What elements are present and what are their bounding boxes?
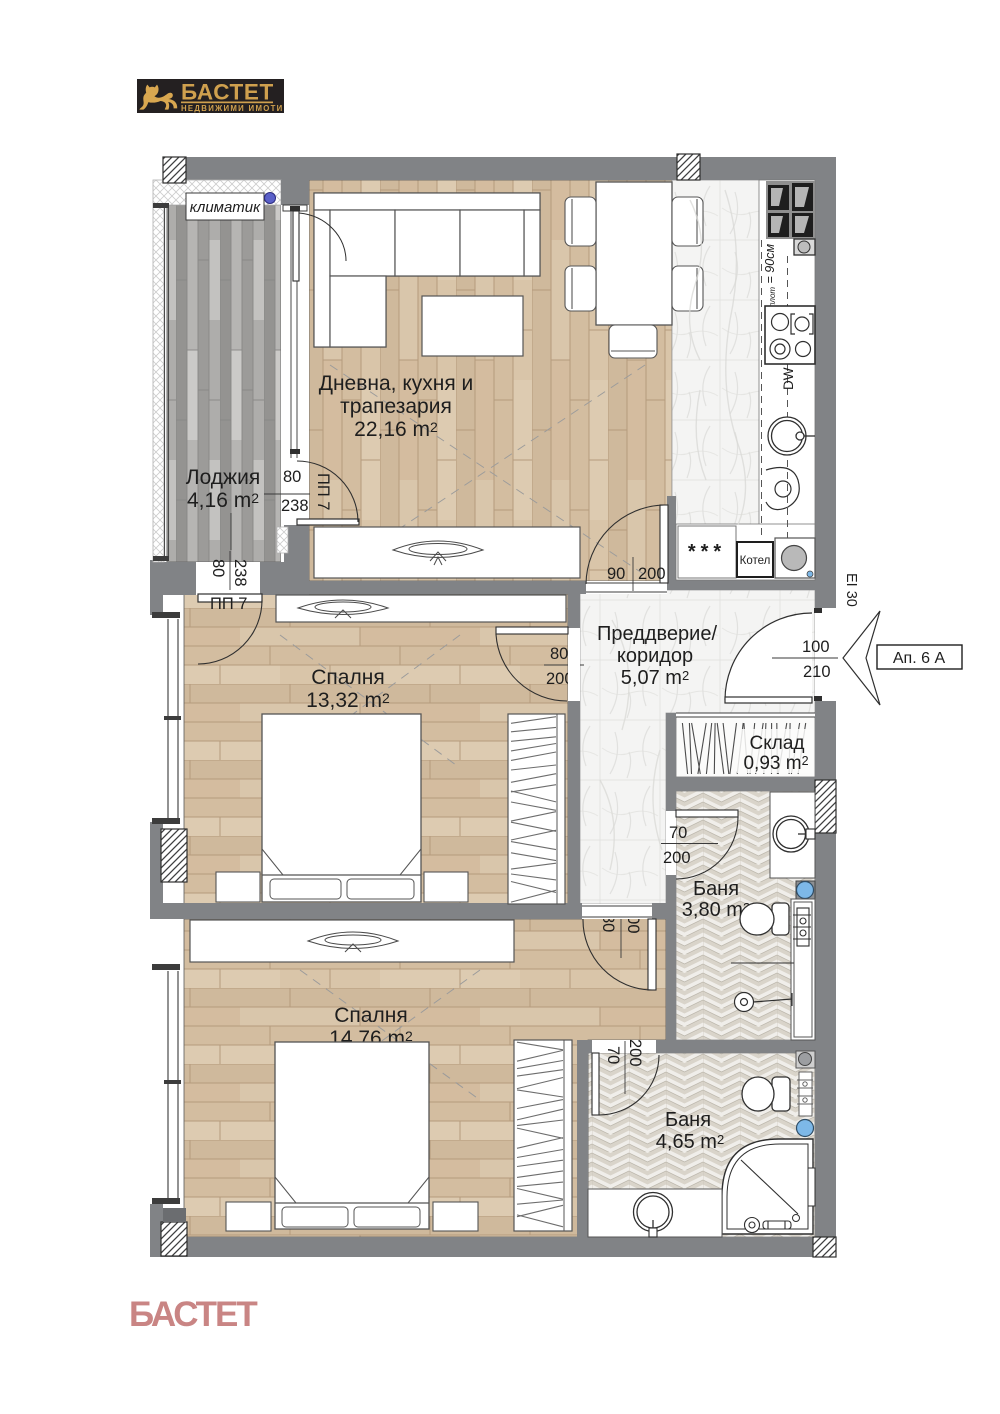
svg-text:70: 70 [669, 824, 687, 842]
svg-text:22,16 m2: 22,16 m2 [354, 418, 438, 441]
svg-text:80: 80 [209, 559, 227, 577]
svg-text:ПП 7: ПП 7 [210, 595, 247, 613]
svg-text:трапезария: трапезария [340, 395, 452, 418]
svg-text:200: 200 [626, 1039, 644, 1067]
svg-text:Баня: Баня [665, 1109, 711, 1131]
svg-text:70: 70 [604, 1046, 622, 1064]
svg-text:климатик: климатик [190, 199, 261, 216]
svg-text:238: 238 [231, 559, 249, 587]
svg-text:Дневна, кухня и: Дневна, кухня и [319, 372, 474, 395]
svg-text:238: 238 [281, 497, 309, 515]
svg-text:Преддверие/: Преддверие/ [597, 623, 717, 645]
svg-text:90: 90 [607, 565, 625, 583]
svg-text:Спалня: Спалня [334, 1004, 407, 1027]
svg-text:***: *** [688, 541, 726, 563]
svg-text:DW: DW [781, 367, 796, 390]
svg-text:НЕДВИЖИМИ ИМОТИ: НЕДВИЖИМИ ИМОТИ [181, 104, 284, 113]
svg-text:Склад: Склад [750, 733, 805, 754]
svg-text:Спалня: Спалня [311, 666, 384, 689]
svg-text:БАСТЕТ: БАСТЕТ [181, 80, 274, 105]
svg-text:коридор: коридор [617, 645, 693, 667]
svg-text:Котел: Котел [740, 555, 771, 567]
svg-text:4,65 m2: 4,65 m2 [656, 1131, 724, 1153]
svg-text:100: 100 [802, 638, 830, 656]
svg-text:210: 210 [803, 663, 831, 681]
svg-text:80: 80 [550, 645, 568, 663]
svg-text:Баня: Баня [693, 878, 739, 900]
svg-text:0,93 m2: 0,93 m2 [743, 753, 808, 774]
svg-text:4,16 m2: 4,16 m2 [187, 489, 259, 512]
svg-text:5,07 m2: 5,07 m2 [621, 667, 689, 689]
svg-text:ПП 7: ПП 7 [314, 473, 332, 510]
svg-text:80: 80 [283, 468, 301, 486]
svg-text:13,32 m2: 13,32 m2 [306, 689, 390, 712]
svg-text:ЕІ 30: ЕІ 30 [843, 573, 859, 607]
svg-text:Ап. 6 А: Ап. 6 А [893, 650, 946, 667]
svg-text:БАСТЕТ: БАСТЕТ [129, 1295, 257, 1334]
svg-text:200: 200 [663, 849, 691, 867]
svg-text:200: 200 [638, 565, 666, 583]
svg-text:Лоджия: Лоджия [186, 466, 260, 489]
